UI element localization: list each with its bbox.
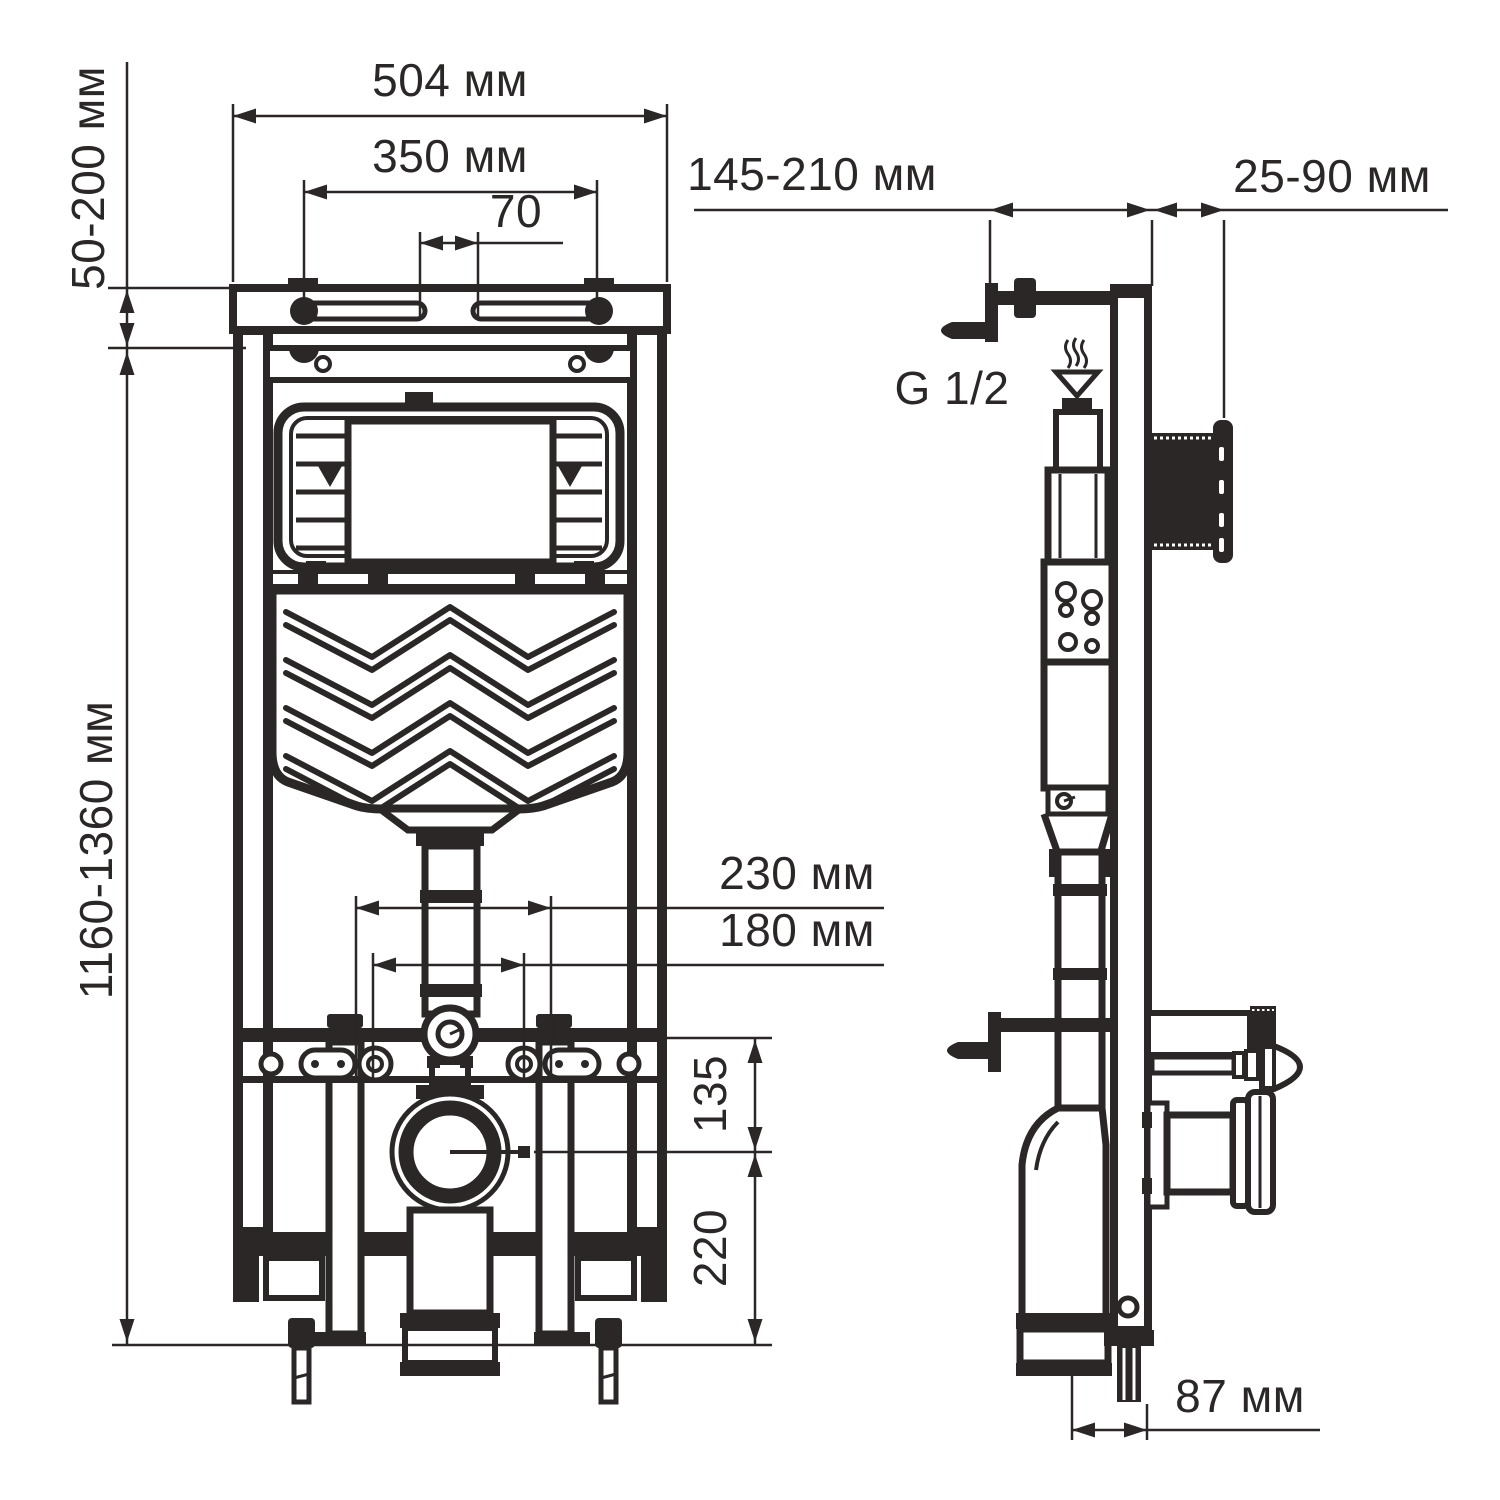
left-support-leg [329, 1042, 361, 1334]
stud-cone-tip [1262, 1046, 1300, 1089]
label-water-thread: G 1/2 [894, 362, 1009, 414]
cistern-funnel [380, 809, 520, 830]
dim-label-frame-height: 1160-1360 мм [70, 701, 122, 1000]
push-button-sleeve [1152, 420, 1233, 563]
side-frame-bar [1114, 288, 1148, 1330]
side-drain-coupling [1020, 1329, 1108, 1363]
dim-label-mounting-holes: 350 мм [372, 130, 528, 182]
drain-elbow [1022, 1108, 1106, 1318]
lower-wall-bolt [947, 1042, 1001, 1059]
water-supply-symbol [1056, 338, 1098, 412]
left-mounting-bolt [290, 297, 318, 325]
dim-label-outlet-height: 135 [684, 1055, 736, 1133]
toilet-outlet-connector [1142, 1092, 1273, 1212]
dim-label-drain-offset: 87 мм [1175, 1370, 1305, 1422]
right-mounting-slot [473, 303, 599, 319]
bottom-left-bracket [233, 1256, 259, 1302]
dim-label-width-top: 504 мм [372, 54, 528, 106]
dim-label-bracket-depth: 145-210 мм [687, 148, 937, 200]
dim-label-slot-gap: 70 [490, 185, 542, 237]
top-wall-bracket [941, 278, 1117, 342]
right-screw [570, 357, 584, 371]
side-view [941, 278, 1300, 1402]
dim-label-stud-inner: 180 мм [719, 904, 875, 956]
right-mounting-bolt [585, 297, 613, 325]
left-anchor-block [288, 1318, 315, 1348]
drawing-canvas: 504 мм 350 мм 70 50-200 мм 1160-1360 мм [0, 0, 1500, 1500]
fill-valve-top [1056, 412, 1100, 472]
right-frame-rail [632, 330, 662, 1232]
bottom-right-slot [578, 1258, 634, 1298]
right-support-leg [539, 1042, 571, 1334]
left-mounting-slot [304, 303, 425, 319]
toilet-fixing-stud [1148, 1006, 1300, 1089]
access-window [348, 421, 553, 562]
bottom-right-bracket [641, 1256, 667, 1302]
dim-label-outlet-floor: 220 [684, 1209, 736, 1287]
dim-label-button-depth: 25-90 мм [1233, 150, 1431, 202]
flush-mechanism-box [1044, 562, 1112, 662]
dim-label-upper-bracket: 50-200 мм [62, 66, 114, 290]
right-anchor-block [595, 1318, 622, 1348]
installation-frame-technical-drawing: 504 мм 350 мм 70 50-200 мм 1160-1360 мм [0, 0, 1500, 1500]
front-view [112, 278, 772, 1402]
cistern-side-profile [1044, 662, 1112, 788]
left-frame-rail [238, 330, 268, 1232]
bottom-left-slot [266, 1258, 322, 1298]
top-wall-bolt [941, 322, 995, 339]
fill-valve-body [1048, 470, 1108, 562]
right-bolt-pad [584, 278, 614, 290]
supply-triangle-icon [1056, 372, 1098, 396]
left-screw [316, 357, 330, 371]
dim-label-stud-outer: 230 мм [719, 847, 875, 899]
drain-pipe [410, 1210, 490, 1313]
